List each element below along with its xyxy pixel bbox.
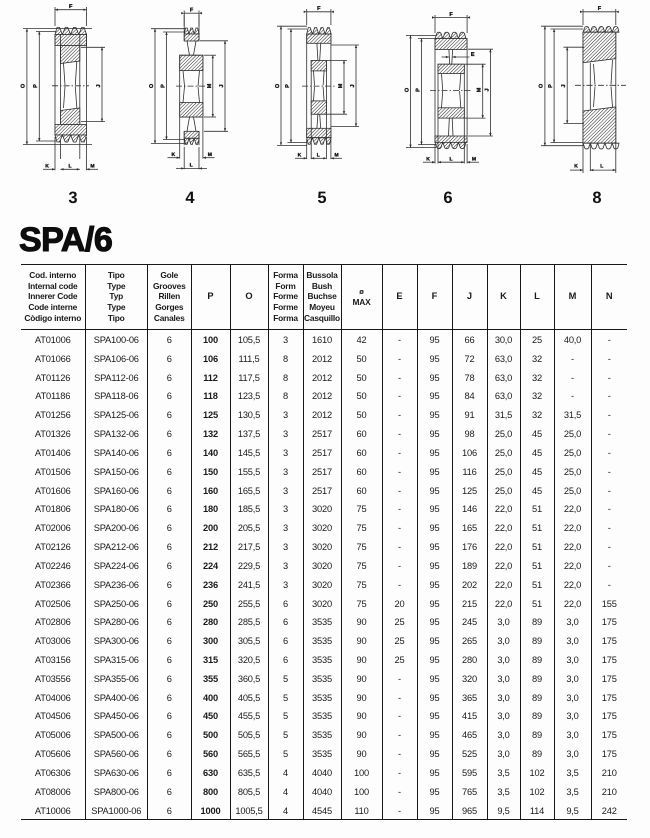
svg-text:P: P [548, 84, 554, 88]
svg-text:P: P [33, 84, 39, 88]
svg-text:M: M [472, 156, 476, 162]
svg-text:M: M [335, 153, 339, 159]
svg-text:L: L [449, 156, 452, 162]
svg-text:O: O [404, 87, 410, 92]
svg-text:P: P [415, 88, 421, 92]
svg-text:L: L [190, 163, 193, 169]
svg-text:O: O [275, 83, 281, 88]
svg-text:M: M [208, 152, 212, 158]
svg-text:O: O [539, 83, 545, 88]
svg-text:8: 8 [592, 189, 601, 207]
svg-text:K: K [45, 163, 49, 169]
svg-text:F: F [449, 12, 453, 18]
svg-text:5: 5 [317, 189, 326, 207]
svg-text:K: K [426, 156, 430, 162]
svg-text:J: J [561, 84, 567, 87]
svg-text:M: M [338, 83, 344, 88]
svg-text:J: J [219, 84, 225, 87]
svg-text:K: K [574, 164, 578, 170]
svg-text:F: F [69, 4, 73, 10]
svg-text:3: 3 [68, 189, 77, 207]
svg-text:4: 4 [185, 189, 195, 207]
svg-text:M: M [477, 87, 483, 92]
svg-text:K: K [171, 152, 175, 158]
svg-text:E: E [471, 52, 475, 58]
svg-text:M: M [207, 83, 213, 88]
svg-text:F: F [317, 6, 321, 12]
svg-text:6: 6 [443, 189, 452, 207]
svg-text:O: O [149, 83, 155, 88]
svg-text:F: F [190, 8, 194, 14]
svg-text:L: L [317, 153, 320, 159]
svg-text:P: P [285, 84, 291, 88]
svg-text:J: J [350, 84, 356, 87]
svg-text:J: J [96, 84, 102, 87]
svg-text:K: K [298, 153, 302, 159]
svg-text:L: L [68, 163, 71, 169]
svg-text:J: J [484, 88, 490, 91]
svg-text:O: O [21, 83, 27, 88]
svg-text:F: F [598, 6, 602, 12]
svg-text:P: P [160, 84, 166, 88]
svg-text:M: M [90, 163, 94, 169]
svg-text:L: L [600, 164, 603, 170]
